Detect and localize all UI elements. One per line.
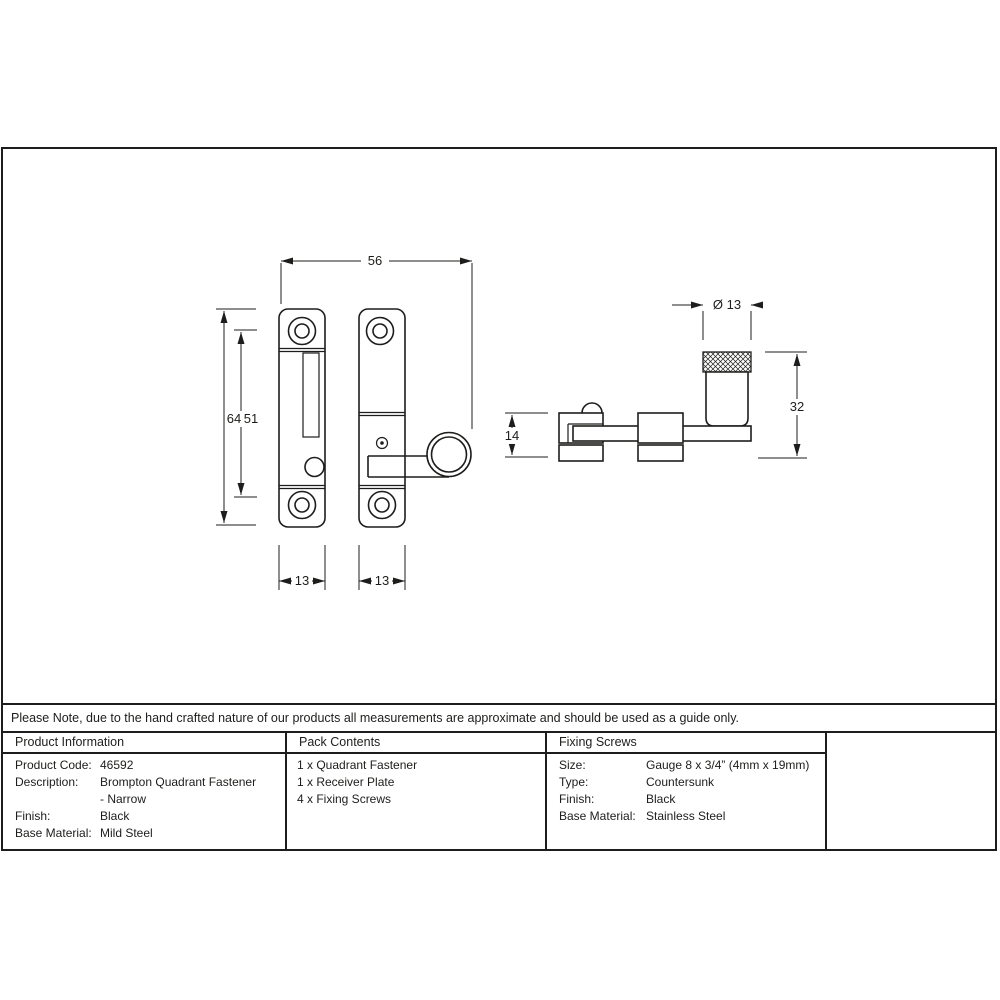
brand-logo-cell: From the ♦ nvil ®: [827, 733, 995, 849]
dim-label-height-outer: 64: [227, 411, 241, 426]
pack-item: 1 x Quadrant Fastener: [297, 757, 545, 774]
table-row: Product Code: 46592: [15, 757, 285, 774]
column-header: Pack Contents: [287, 733, 545, 754]
pack-item: 1 x Receiver Plate: [297, 774, 545, 791]
table-row: Base Material: Stainless Steel: [559, 808, 825, 825]
drawing-sheet: 56: [1, 147, 997, 851]
table-row: Base Material: Mild Steel: [15, 825, 285, 842]
side-view-drawing: Ø 13: [503, 297, 807, 461]
dim-label-height-inner: 51: [244, 411, 258, 426]
dim-label-overall-height: 32: [790, 399, 804, 414]
table-row: Description: Brompton Quadrant Fastener: [15, 774, 285, 791]
table-row: Finish: Black: [15, 808, 285, 825]
product-information-column: Product Information Product Code: 46592 …: [3, 733, 287, 849]
measurement-note: Please Note, due to the hand crafted nat…: [3, 703, 995, 729]
column-header: Product Information: [3, 733, 285, 754]
front-view-drawing: 56: [216, 252, 472, 590]
dim-label-plate-left: 13: [295, 573, 309, 588]
dim-label-diameter: Ø 13: [713, 297, 741, 312]
pack-item: 4 x Fixing Screws: [297, 791, 545, 808]
dim-label-keep-height: 14: [505, 428, 519, 443]
column-header: Fixing Screws: [547, 733, 825, 754]
table-row: - Narrow: [15, 791, 285, 808]
dim-label-width: 56: [368, 253, 382, 268]
pack-contents-column: Pack Contents 1 x Quadrant Fastener 1 x …: [287, 733, 547, 849]
table-row: Type: Countersunk: [559, 774, 825, 791]
dim-label-plate-right: 13: [375, 573, 389, 588]
spec-sheet-page: 56: [0, 0, 1000, 1000]
table-row: Finish: Black: [559, 791, 825, 808]
table-row: Size: Gauge 8 x 3/4” (4mm x 19mm): [559, 757, 825, 774]
fixing-screws-column: Fixing Screws Size: Gauge 8 x 3/4” (4mm …: [547, 733, 827, 849]
product-info-table: Product Information Product Code: 46592 …: [3, 731, 995, 849]
technical-drawing: 56: [3, 149, 995, 703]
